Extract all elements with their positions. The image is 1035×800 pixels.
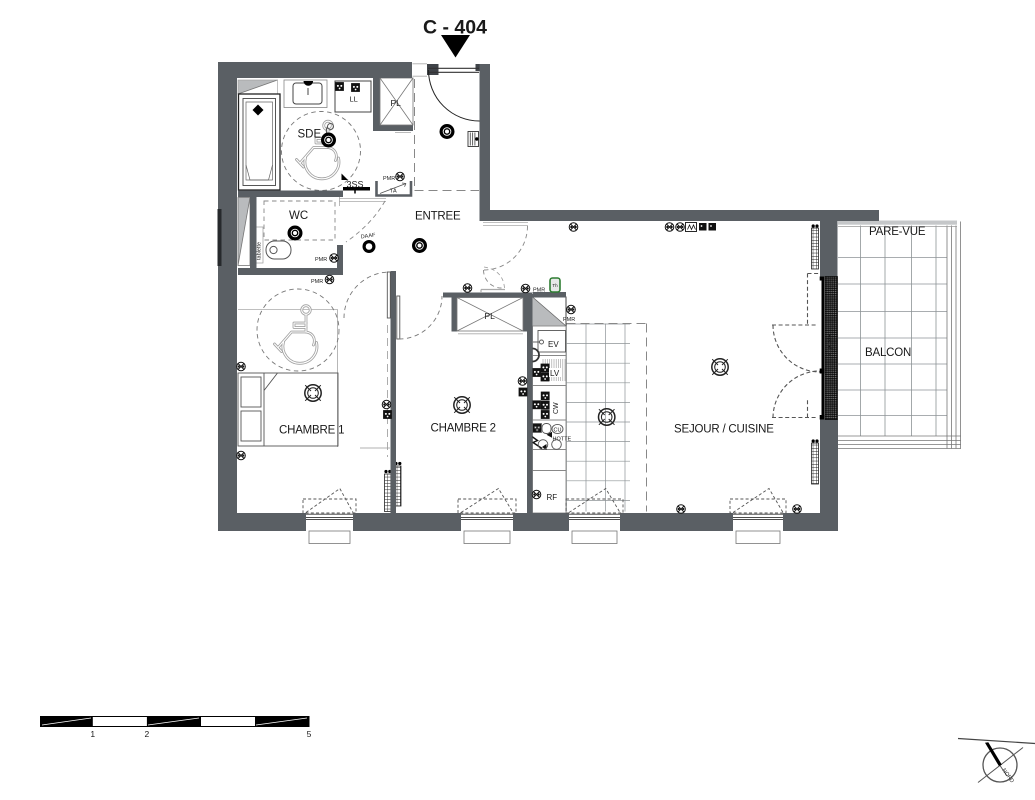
svg-text:WC: WC bbox=[289, 210, 308, 222]
svg-text:BALCON: BALCON bbox=[865, 347, 911, 359]
svg-text:SDE: SDE bbox=[298, 129, 322, 141]
svg-text:CU: CU bbox=[554, 428, 562, 434]
svg-text:2: 2 bbox=[145, 729, 150, 739]
svg-text:PMR: PMR bbox=[311, 279, 323, 285]
svg-text:RF: RF bbox=[547, 493, 558, 502]
svg-text:PL: PL bbox=[391, 98, 402, 108]
svg-text:1: 1 bbox=[90, 729, 95, 739]
svg-text:imposte: imposte bbox=[827, 334, 833, 356]
svg-text:HOTTE: HOTTE bbox=[553, 437, 572, 443]
svg-text:TA: TA bbox=[390, 189, 397, 195]
svg-text:PMR: PMR bbox=[533, 288, 545, 294]
svg-text:3SS: 3SS bbox=[347, 180, 364, 190]
svg-text:PMR: PMR bbox=[563, 317, 575, 323]
svg-text:tablette: tablette bbox=[257, 242, 263, 260]
svg-text:ENTREE: ENTREE bbox=[415, 211, 461, 223]
svg-text:LL: LL bbox=[350, 95, 358, 104]
svg-text:CW: CW bbox=[553, 402, 560, 414]
svg-text:Th: Th bbox=[552, 283, 558, 288]
svg-text:EV: EV bbox=[548, 340, 559, 349]
svg-text:5: 5 bbox=[307, 729, 312, 739]
svg-text:PMR: PMR bbox=[383, 176, 395, 182]
svg-text:SEJOUR / CUISINE: SEJOUR / CUISINE bbox=[674, 424, 774, 436]
svg-text:CHAMBRE 2: CHAMBRE 2 bbox=[431, 423, 496, 435]
svg-text:PL: PL bbox=[485, 311, 496, 321]
svg-text:CHAMBRE 1: CHAMBRE 1 bbox=[279, 425, 344, 437]
svg-text:LV: LV bbox=[550, 369, 560, 378]
svg-text:PMR: PMR bbox=[315, 257, 327, 263]
svg-text:PARE-VUE: PARE-VUE bbox=[869, 226, 926, 238]
